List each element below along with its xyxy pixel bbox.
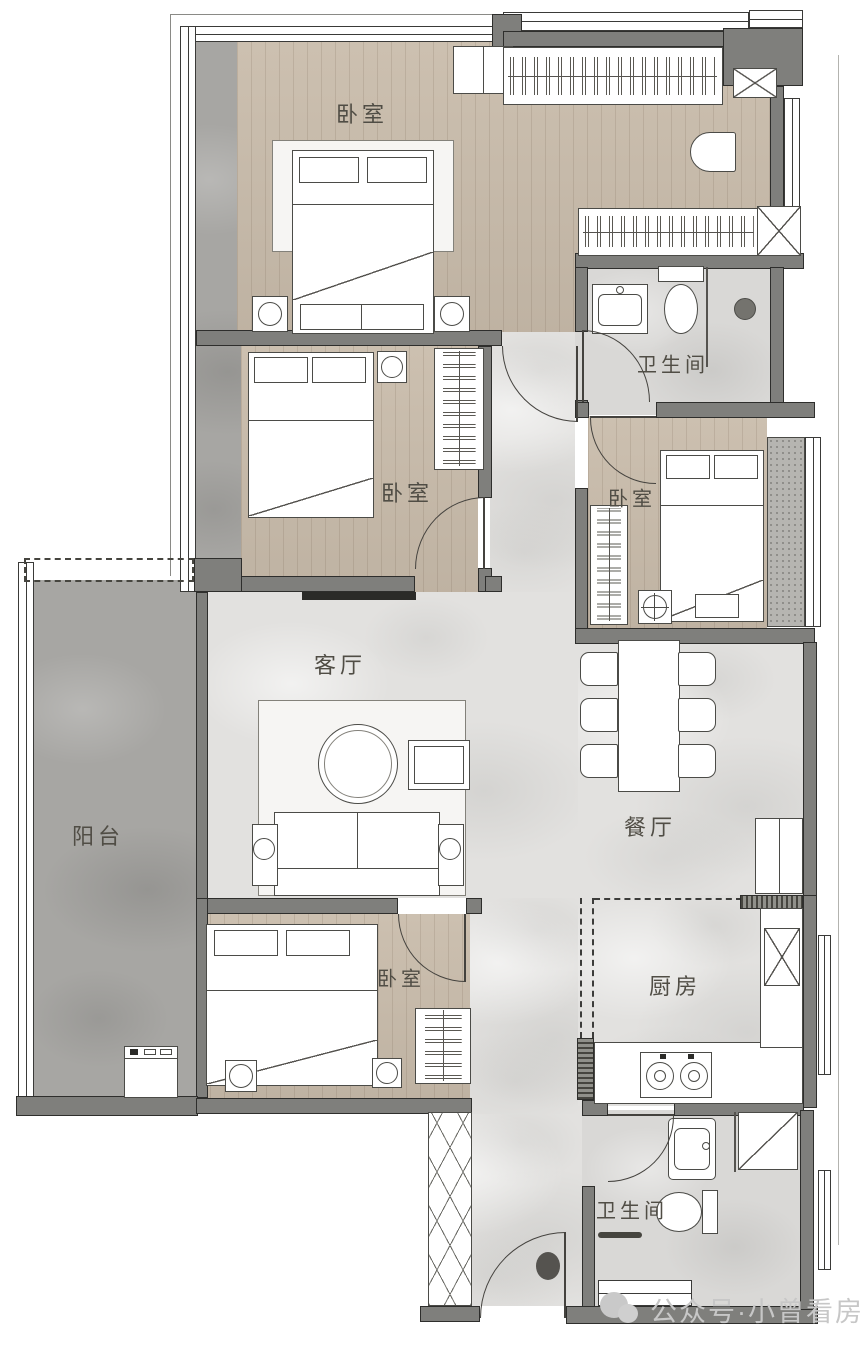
- window-kitchen: [818, 935, 831, 1075]
- sink-basin: [598, 294, 642, 326]
- wall: [194, 558, 242, 592]
- pillow: [254, 357, 308, 383]
- wall: [803, 895, 817, 1108]
- sofa-divider: [357, 813, 358, 868]
- shower-glass: [734, 1112, 736, 1172]
- watermark-text: 公众号·小曾看房: [650, 1290, 860, 1329]
- door-leaf: [483, 497, 485, 569]
- room-label-bedroom-master: 卧室: [336, 97, 388, 129]
- bed-bench: [300, 304, 424, 330]
- room-label-balcony: 阳台: [72, 819, 124, 851]
- chair-icon: [580, 698, 618, 732]
- room-label-bedroom-third: 卧室: [608, 483, 656, 512]
- bench-divider: [361, 305, 362, 329]
- pillow: [299, 157, 359, 183]
- kitchen-sink-icon: [764, 928, 800, 986]
- window-top-closet: [503, 12, 749, 31]
- lamp-icon: [253, 838, 275, 860]
- floor-plan-canvas: 卧室 卫生间 卧室 卧室 客厅 阳台 餐厅 卧室 厨房 卫生间 公众号·小曾看房: [0, 0, 860, 1353]
- wall: [582, 1186, 595, 1308]
- watermark: 公众号·小曾看房: [600, 1288, 860, 1330]
- wall: [503, 31, 749, 47]
- room-label-kitchen: 厨房: [649, 969, 701, 1001]
- wardrobe-icon: [578, 208, 758, 256]
- window-bottom-right: [818, 1170, 831, 1270]
- room-label-bedroom-fourth: 卧室: [377, 963, 425, 992]
- window-left: [180, 26, 196, 592]
- wall: [466, 898, 482, 914]
- door-leaf: [590, 416, 656, 418]
- chair-icon: [580, 652, 618, 686]
- ac-cross: [641, 607, 669, 608]
- wardrobe-icon: [503, 47, 723, 105]
- shaft-icon: [733, 68, 777, 98]
- wechat-official-account-icon: [600, 1288, 642, 1330]
- sofa-back-line: [275, 868, 439, 869]
- open-kitchen-boundary: [594, 898, 742, 900]
- side-table-inner: [414, 746, 464, 784]
- lamp-icon: [439, 838, 461, 860]
- wall: [656, 402, 815, 418]
- bed-line: [293, 204, 433, 205]
- pillow: [666, 455, 710, 479]
- pillow: [214, 930, 278, 956]
- room-label-bedroom-second: 卧室: [381, 476, 433, 508]
- lamp-icon: [258, 302, 282, 326]
- door-leaf: [576, 346, 578, 422]
- pillow: [312, 357, 366, 383]
- wall: [16, 1096, 198, 1116]
- floor-hall: [470, 898, 582, 1114]
- burner-inner: [654, 1070, 666, 1082]
- wall: [803, 642, 817, 897]
- chair-icon: [678, 744, 716, 778]
- faucet-icon: [616, 286, 624, 294]
- faucet-icon: [702, 1142, 710, 1150]
- wardrobe-icon: [590, 505, 628, 625]
- open-kitchen-boundary: [592, 898, 594, 1038]
- chair-icon: [678, 652, 716, 686]
- washer-button: [160, 1049, 172, 1055]
- door-leaf: [582, 330, 584, 402]
- door-leaf: [464, 914, 466, 982]
- wall: [485, 576, 502, 592]
- dimension-line-right: [838, 55, 839, 1245]
- tv-icon: [302, 592, 416, 600]
- pillow: [367, 157, 427, 183]
- washer-panel-line: [125, 1058, 177, 1059]
- floor-side-lightwell: [196, 42, 241, 592]
- stove-knob: [660, 1054, 666, 1059]
- blanket-fold: [249, 478, 373, 516]
- shaft-icon: [757, 206, 801, 256]
- stove-knob: [688, 1054, 694, 1059]
- wardrobe-icon: [434, 348, 484, 470]
- shower-head-icon: [734, 298, 756, 320]
- door-leaf: [564, 1232, 566, 1318]
- chair-icon: [678, 698, 716, 732]
- toilet-tank: [658, 266, 704, 282]
- bed-line: [249, 420, 373, 421]
- wardrobe-icon: [415, 1008, 471, 1084]
- column-concrete: [767, 437, 805, 627]
- window-top-left: [180, 26, 496, 42]
- ottoman: [690, 132, 736, 172]
- dresser-divider: [483, 47, 484, 93]
- wall: [800, 1110, 814, 1310]
- pillow: [286, 930, 350, 956]
- wall: [575, 628, 815, 644]
- towel-bar: [598, 1232, 642, 1238]
- lamp-icon: [381, 356, 403, 378]
- toilet-tank: [702, 1190, 718, 1234]
- wall: [575, 267, 588, 332]
- wall: [196, 592, 208, 905]
- dining-table-icon: [618, 640, 680, 792]
- burner-inner: [688, 1070, 700, 1082]
- room-label-bathroom-master: 卫生间: [637, 349, 709, 378]
- vent-strip: [740, 895, 803, 909]
- bed-line: [207, 990, 377, 991]
- pillow: [714, 455, 758, 479]
- room-label-dining: 餐厅: [624, 810, 676, 842]
- wall: [196, 898, 398, 914]
- blanket-fold: [293, 252, 433, 300]
- chair-icon: [580, 744, 618, 778]
- open-kitchen-boundary: [580, 898, 582, 1038]
- room-label-bathroom-common: 卫生间: [596, 1195, 668, 1224]
- cabinet-divider: [779, 819, 780, 893]
- wall: [420, 1306, 480, 1322]
- window-top-right: [749, 10, 803, 28]
- ac-cross: [654, 593, 655, 621]
- lamp-icon: [376, 1062, 398, 1084]
- bed-line: [661, 505, 763, 506]
- bed-bench: [695, 594, 739, 618]
- wall: [575, 488, 588, 642]
- washer-button: [144, 1049, 156, 1055]
- overhang-dashed-box: [24, 558, 194, 582]
- wall: [770, 267, 784, 417]
- window-bedroom-third: [805, 437, 821, 627]
- window-balcony: [18, 562, 34, 1100]
- room-label-living: 客厅: [314, 648, 366, 680]
- shower-tray-icon: [738, 1112, 798, 1170]
- ac-fan-icon: [229, 1064, 253, 1088]
- washer-knob: [130, 1049, 138, 1055]
- cabinet-strip: [577, 1038, 594, 1100]
- door-leaf: [608, 1114, 674, 1116]
- lamp-icon: [440, 302, 464, 326]
- shoe-cabinet-icon: [428, 1112, 472, 1306]
- toilet-icon: [664, 284, 698, 334]
- coffee-table-inner: [324, 730, 392, 798]
